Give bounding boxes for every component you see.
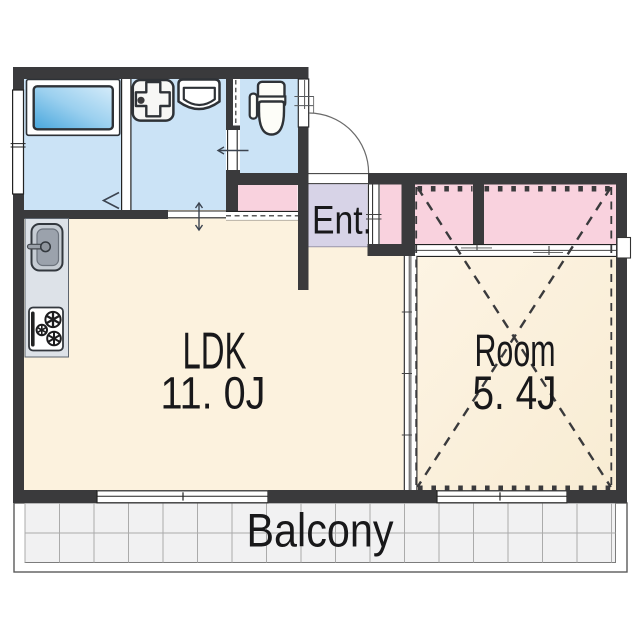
svg-text:Ent.: Ent. — [312, 199, 372, 243]
svg-text:Balcony: Balcony — [247, 504, 394, 557]
svg-text:11. 0J: 11. 0J — [161, 368, 266, 419]
svg-text:5. 4J: 5. 4J — [473, 366, 557, 419]
